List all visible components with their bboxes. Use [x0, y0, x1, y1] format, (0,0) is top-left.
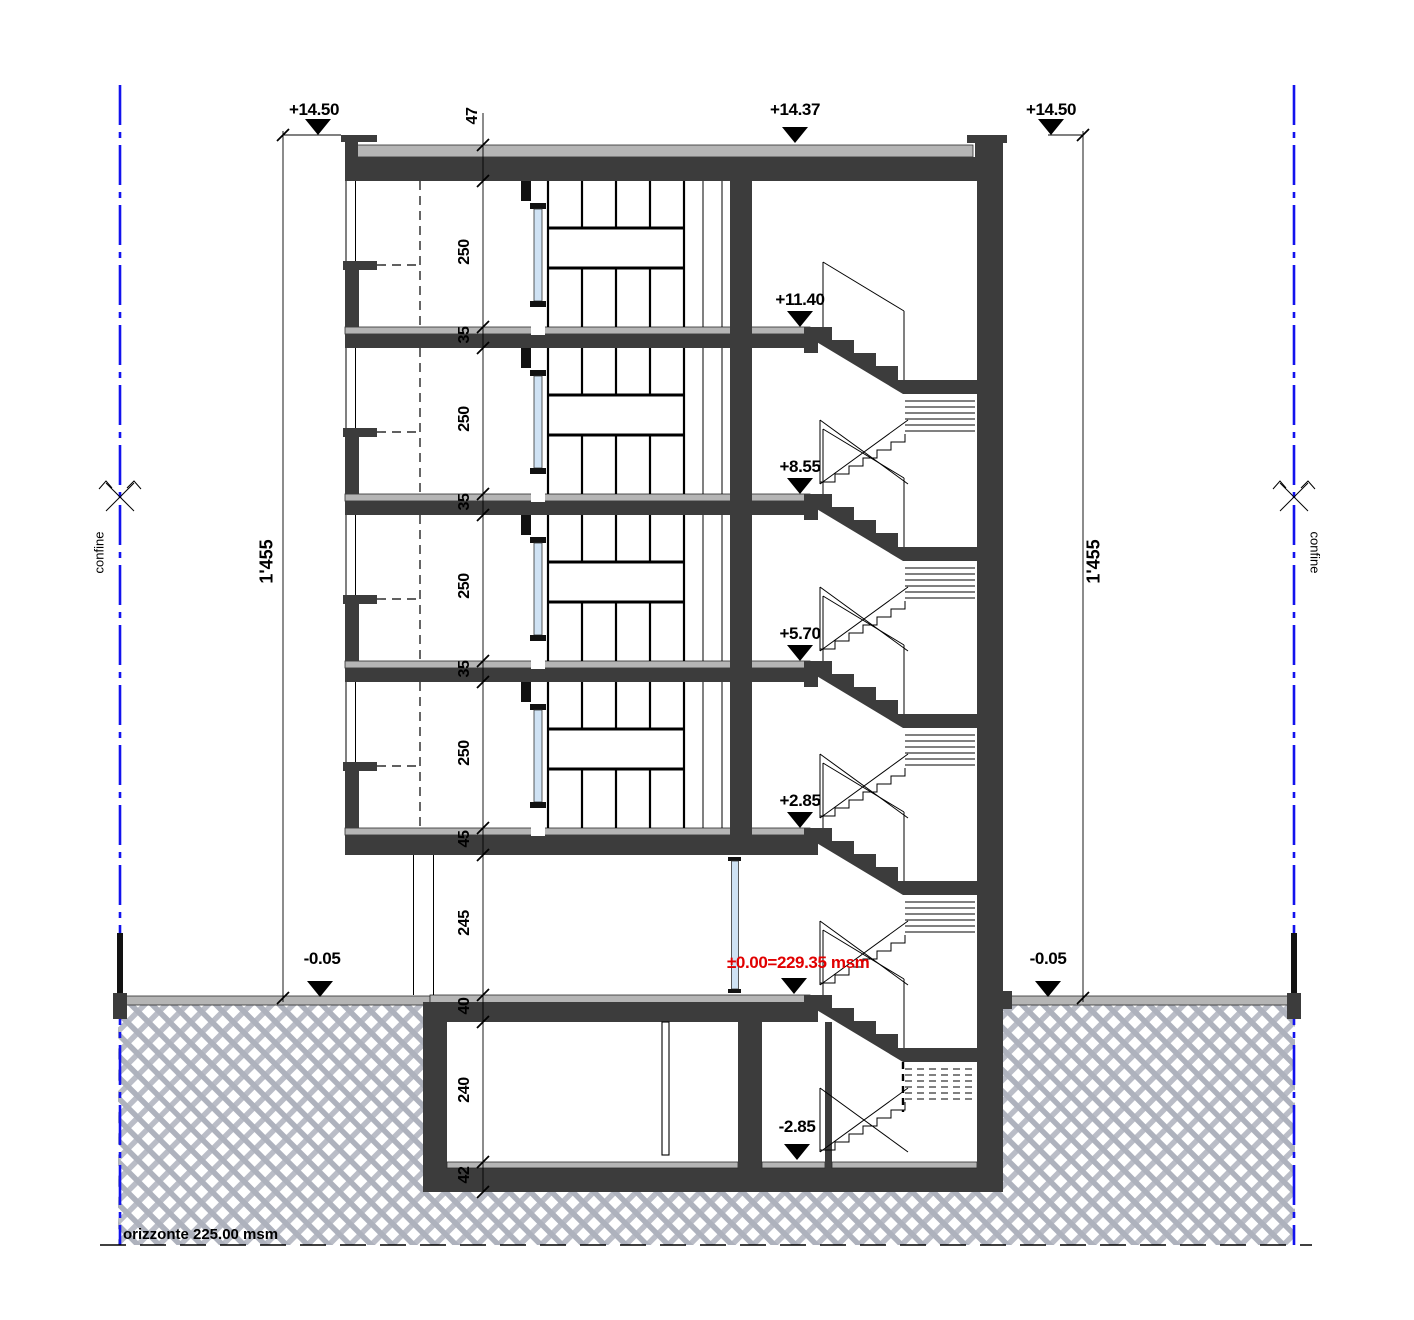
dim-slab: 35	[456, 629, 474, 709]
basement	[423, 1002, 1003, 1192]
stairwell-wall	[730, 181, 752, 855]
dim-room-height: 250	[456, 379, 474, 459]
dim-total-right: 1'455	[1084, 522, 1105, 602]
level-triangle-icon	[787, 645, 813, 661]
basement-door	[662, 1022, 669, 1155]
level-triangle-icon	[787, 478, 813, 494]
dim-room-height: 250	[456, 713, 474, 793]
level-triangle-icon	[1038, 119, 1064, 135]
level-label: +14.50	[289, 100, 339, 120]
dim-room-height: 245	[456, 883, 474, 963]
right-outer-wall	[977, 142, 1003, 1192]
boundary-post-left	[117, 933, 123, 995]
level-triangle-icon	[1035, 981, 1061, 997]
section-geometry	[0, 0, 1414, 1320]
level-label: +5.70	[779, 624, 820, 644]
level-triangle-icon	[787, 311, 813, 327]
boundary-post-right	[1291, 933, 1297, 995]
foundation-slab	[423, 1168, 1003, 1192]
datum-label: ±0.00=229.35 msm	[727, 953, 869, 973]
level-label: +14.37	[770, 100, 820, 120]
level-triangle-icon	[781, 978, 807, 994]
boundary-label-left: confine	[92, 513, 107, 593]
dim-slab: 35	[456, 295, 474, 375]
boundary-label-right: confine	[1308, 513, 1323, 593]
dim-room-height: 250	[456, 212, 474, 292]
left-parapet-cap	[341, 135, 377, 142]
dim-room-height: 240	[456, 1050, 474, 1130]
dim-total-left: 1'455	[257, 522, 278, 602]
level-triangle-icon	[307, 981, 333, 997]
level-label: +11.40	[775, 290, 824, 310]
level-triangle-icon	[784, 1144, 810, 1160]
level-label: +8.55	[779, 457, 820, 477]
dim-roof-slab: 47	[464, 76, 482, 156]
dim-slab: 42	[456, 1135, 474, 1215]
dim-slab: 35	[456, 462, 474, 542]
level-triangle-icon	[305, 119, 331, 135]
right-parapet-cap	[967, 135, 1007, 143]
level-triangle-icon	[787, 812, 813, 828]
level-label: -0.05	[1030, 949, 1067, 969]
level-label: -0.05	[304, 949, 341, 969]
building-section-drawing: +14.50 +14.37 +14.50 +11.40 +8.55 +5.70 …	[0, 0, 1414, 1320]
basement-left-wall	[423, 1002, 447, 1192]
level-label: -2.85	[779, 1117, 816, 1137]
level-triangle-icon	[782, 127, 808, 143]
horizon-label: orizzonte 225.00 msm	[123, 1226, 278, 1243]
earth-hatch	[118, 1005, 1295, 1245]
level-label: +2.85	[779, 791, 820, 811]
dim-slab: 40	[456, 966, 474, 1046]
far-flight-lines	[903, 401, 975, 1112]
level-label: +14.50	[1026, 100, 1076, 120]
dim-slab: 45	[456, 799, 474, 879]
dim-room-height: 250	[456, 546, 474, 626]
